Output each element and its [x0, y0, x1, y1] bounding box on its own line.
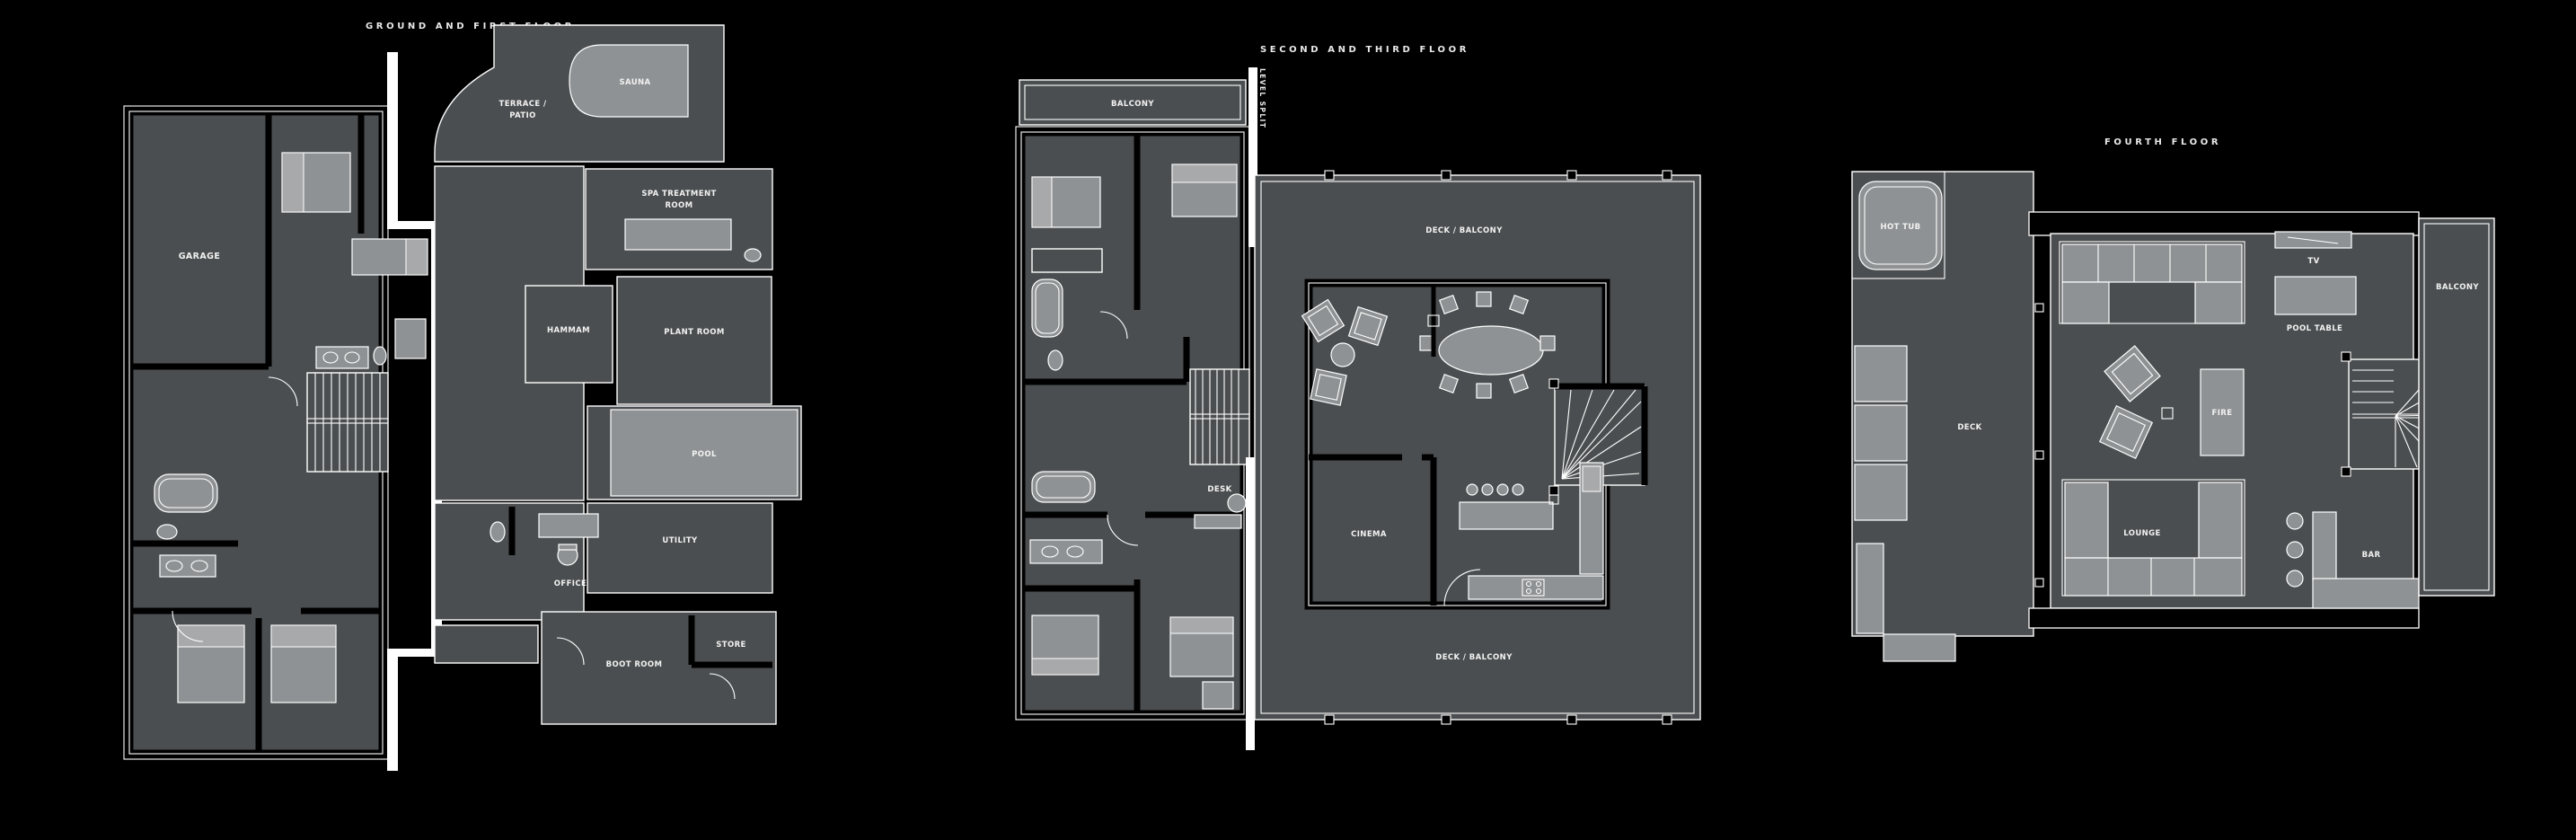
tv-label: TV [2307, 257, 2319, 266]
deck-step [1857, 544, 1883, 633]
deck-label: DECK [1957, 423, 1981, 432]
sauna-label: SAUNA [619, 78, 650, 87]
deck-balcony-bottom-label: DECK / BALCONY [1435, 653, 1513, 662]
shower [1203, 682, 1233, 709]
lounge-label: LOUNGE [2123, 529, 2161, 538]
pool-table-label: POOL TABLE [2287, 324, 2342, 333]
massage-table [625, 219, 731, 250]
ground-first-floor-plan: GARAGE [117, 18, 808, 777]
post [2035, 579, 2043, 587]
bar-counter [2313, 579, 2419, 608]
first-floor-wing: GARAGE [124, 106, 428, 759]
desk-label: DESK [1207, 485, 1231, 494]
lounger [1855, 405, 1907, 461]
garage-label: GARAGE [179, 252, 221, 261]
sink [157, 525, 177, 539]
bar-stool [1497, 484, 1508, 495]
bar-stool [2287, 513, 2303, 529]
toilet [1048, 350, 1063, 370]
lounger [1855, 346, 1907, 402]
hammam-label: HAMMAM [547, 326, 590, 335]
bar-stool [2287, 542, 2303, 558]
bedroom-wing: DESK [1016, 127, 1249, 720]
bed [178, 625, 244, 703]
utility-label: UTILITY [662, 536, 698, 545]
level-split-divider [387, 52, 442, 771]
side-table [1331, 343, 1354, 367]
office-chair [558, 544, 578, 565]
utility [587, 503, 772, 593]
bar-stool [1482, 484, 1493, 495]
bed [282, 153, 350, 212]
pool-table [2275, 277, 2356, 314]
deck-wing: HOT TUB DECK [1852, 172, 2033, 661]
balcony-right: BALCONY [2419, 218, 2494, 596]
tv [2275, 232, 2351, 248]
bar-stool [2287, 570, 2303, 587]
lounge-wing: TV POOL TABLE FIRE LOUNGE [2029, 212, 2443, 628]
staircase [1190, 369, 1249, 464]
bed [1032, 177, 1100, 227]
desk-chair [1228, 494, 1246, 512]
post [2035, 451, 2043, 459]
terrace-label-line1: TERRACE / [499, 100, 547, 109]
bathtub [154, 474, 217, 512]
second-third-floor-plan: BALCONY [1010, 40, 1711, 768]
living-wing: DECK / BALCONY DECK / BALCONY [1255, 171, 1700, 724]
pool-label: POOL [692, 450, 717, 459]
store-label: STORE [716, 641, 746, 650]
kitchen-island [1460, 502, 1553, 529]
office-label: OFFICE [554, 579, 587, 588]
corridor [435, 625, 538, 663]
bed [1032, 615, 1098, 675]
toilet [374, 347, 386, 365]
bar-stool [1467, 484, 1478, 495]
desk [1195, 515, 1241, 528]
double-vanity [1030, 540, 1102, 563]
fourth-floor-plan: HOT TUB DECK [1846, 135, 2555, 710]
fireplace: FIRE [2201, 369, 2244, 455]
balcony-label: BALCONY [1111, 100, 1154, 109]
terrace-label-line2: PATIO [509, 111, 536, 120]
cinema-label: CINEMA [1351, 530, 1387, 539]
balcony-label: BALCONY [2436, 283, 2479, 292]
bar-counter [2313, 512, 2336, 580]
double-vanity [160, 555, 216, 577]
fire-label: FIRE [2212, 409, 2233, 418]
spa-label-line2: ROOM [665, 201, 693, 210]
post [2035, 304, 2043, 312]
hot-tub: HOT TUB [1859, 181, 1942, 270]
deck-step [1883, 634, 1955, 661]
wardrobe [1032, 249, 1102, 272]
staircase [307, 373, 388, 472]
fridge [1583, 466, 1601, 491]
bathtub [1032, 472, 1095, 502]
boot-room-label: BOOT ROOM [606, 660, 663, 669]
office-desk [539, 514, 598, 537]
bar-stool [1513, 484, 1523, 495]
plant-room [617, 277, 772, 404]
hot-tub-label: HOT TUB [1880, 223, 1920, 232]
floorplan-sheet: GROUND AND FIRST FLOOR SECOND AND THIRD … [0, 0, 2576, 840]
lounger [1855, 464, 1907, 520]
sink [745, 249, 761, 261]
bed [1170, 617, 1233, 676]
shower [395, 319, 426, 358]
bed [271, 625, 336, 703]
bed [352, 239, 428, 275]
bathtub [1032, 279, 1063, 337]
toilet [490, 522, 505, 542]
bed [1172, 164, 1237, 217]
bar-label: BAR [2362, 551, 2381, 560]
spa-label-line1: SPA TREATMENT [641, 190, 716, 199]
plant-room-label: PLANT ROOM [664, 328, 725, 337]
balcony-top: BALCONY [1019, 80, 1246, 125]
ground-floor-wing: TERRACE / PATIO SAUNA SPA TREATMENT ROOM… [435, 25, 801, 724]
deck-balcony-top-label: DECK / BALCONY [1425, 226, 1503, 235]
